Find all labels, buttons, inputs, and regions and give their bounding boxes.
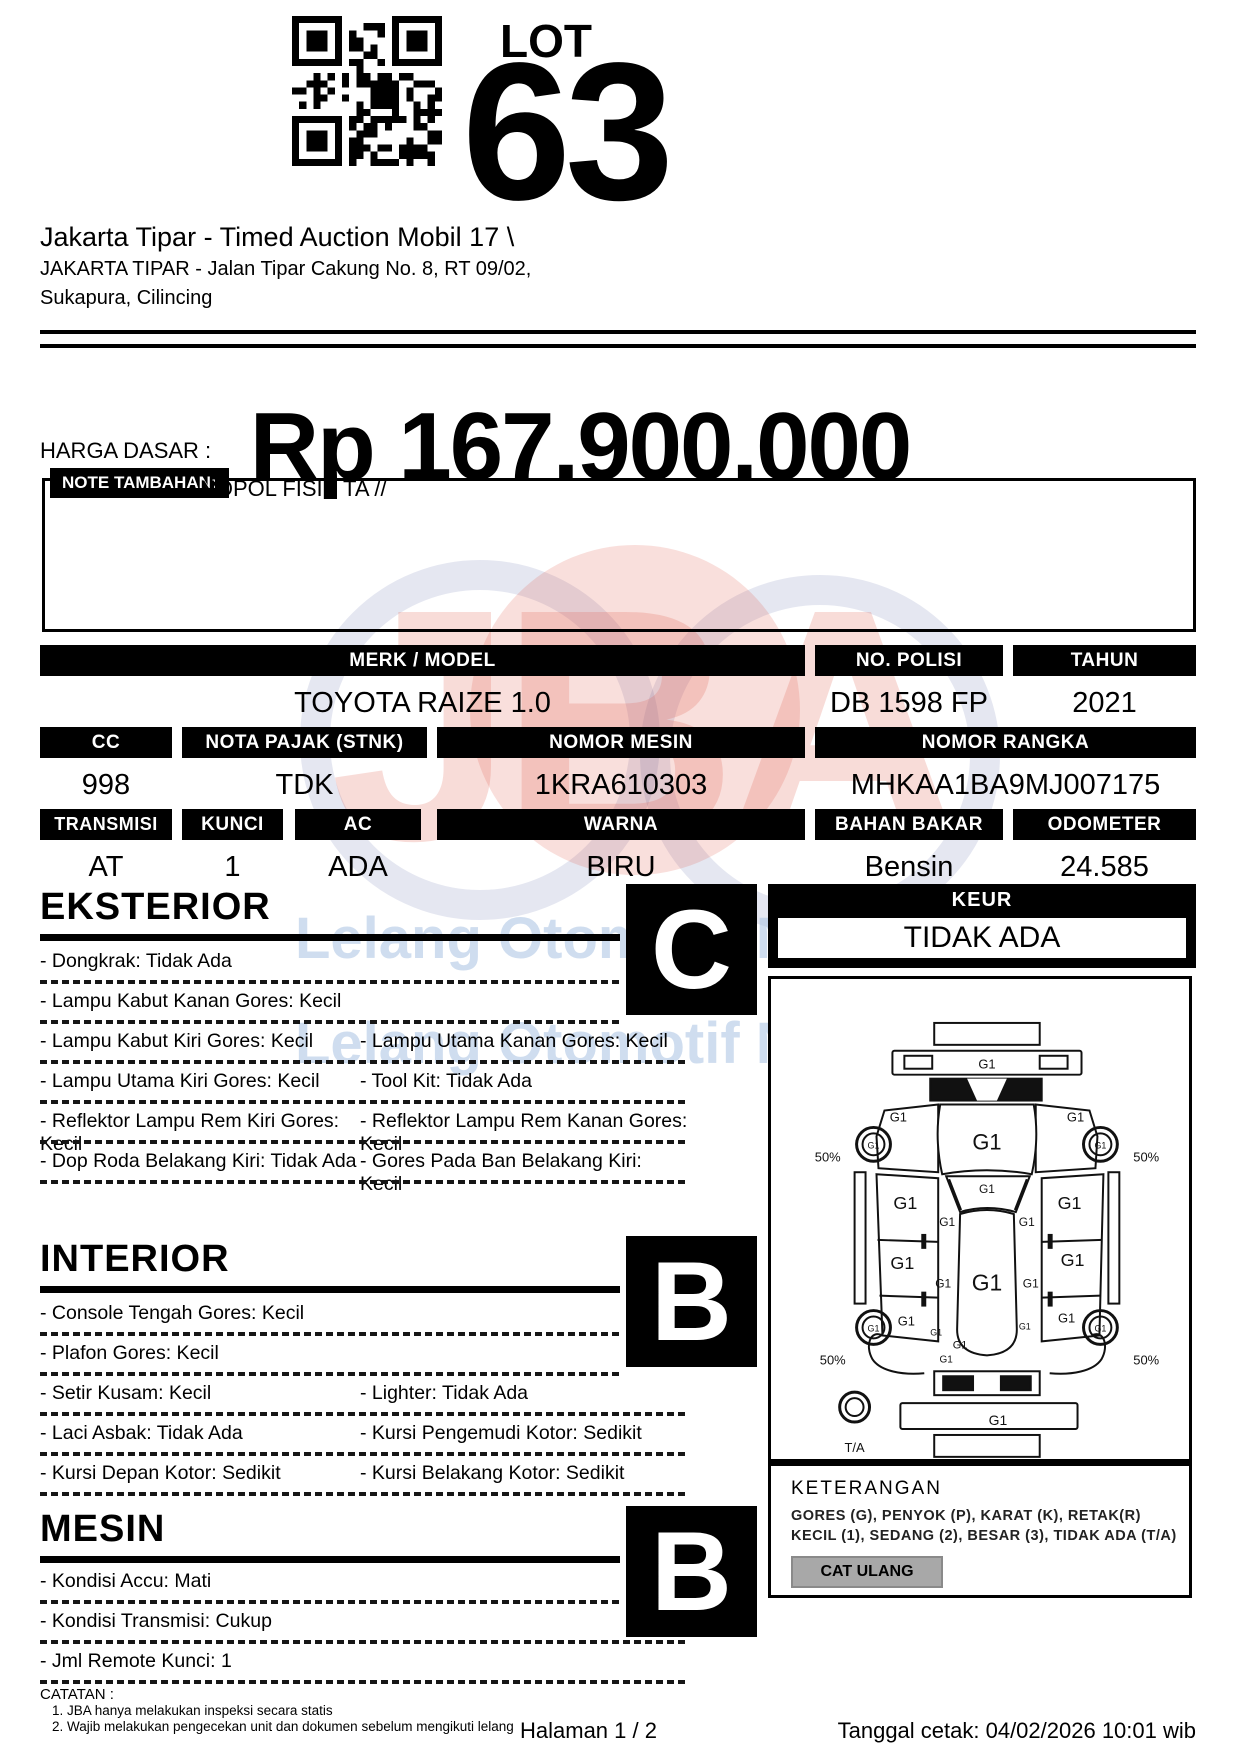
damage-mark: G1 xyxy=(1094,1323,1106,1333)
condition-item-row: - Dop Roda Belakang Kiri: Tidak Ada- Gor… xyxy=(40,1148,688,1188)
dotted-separator xyxy=(40,980,621,984)
damage-mark: G1 xyxy=(953,1339,968,1351)
condition-item-row: - Plafon Gores: Kecil xyxy=(40,1340,621,1380)
damage-mark: G1 xyxy=(930,1327,942,1337)
condition-item: - Kursi Belakang Kotor: Sedikit xyxy=(360,1462,688,1485)
condition-item: - Gores Pada Ban Belakang Kiri: Kecil xyxy=(360,1150,688,1196)
fender-rear-left xyxy=(869,1334,924,1374)
dotted-separator xyxy=(40,1452,688,1456)
spare-tire xyxy=(840,1392,870,1422)
condition-item: - Kursi Depan Kotor: Sedikit xyxy=(40,1462,360,1485)
section-title-mesin: MESIN xyxy=(40,1508,165,1551)
dotted-separator xyxy=(40,1180,688,1184)
pillar-tick xyxy=(921,1234,926,1249)
condition-item: - Dop Roda Belakang Kiri: Tidak Ada xyxy=(40,1150,360,1196)
condition-item-row: - Kondisi Accu: Mati xyxy=(40,1568,621,1608)
damage-mark: 50% xyxy=(815,1149,841,1164)
bahan-bakar-header: BAHAN BAKAR xyxy=(815,809,1003,840)
condition-item: - Lampu Kabut Kanan Gores: Kecil xyxy=(40,990,360,1013)
odometer-header: ODOMETER xyxy=(1013,809,1196,840)
transmisi-value: AT xyxy=(40,850,172,884)
nota-pajak-header: NOTA PAJAK (STNK) xyxy=(182,727,427,758)
keterangan-legend-damage: GORES (G), PENYOK (P), KARAT (K), RETAK(… xyxy=(771,1506,1189,1526)
condition-item xyxy=(360,1650,688,1673)
pillar-tick xyxy=(921,1292,926,1307)
header-divider xyxy=(40,330,1196,348)
condition-item xyxy=(360,1302,621,1325)
condition-item: - Kondisi Transmisi: Cukup xyxy=(40,1610,360,1633)
condition-item-row: - Kondisi Transmisi: Cukup xyxy=(40,1608,688,1648)
keur-value: TIDAK ADA xyxy=(776,916,1188,960)
auction-lot-sheet: JBA Lelang Otomotif No.1 Lelang Otomotif… xyxy=(0,0,1240,1754)
damage-mark: G1 xyxy=(1058,1193,1082,1213)
nomor-mesin-value: 1KRA610303 xyxy=(437,768,805,802)
kunci-header: KUNCI xyxy=(182,809,283,840)
condition-item xyxy=(360,1342,621,1365)
condition-item: - Lampu Utama Kanan Gores: Kecil xyxy=(360,1030,688,1053)
dotted-separator xyxy=(40,1372,621,1376)
dotted-separator xyxy=(40,1600,621,1604)
damage-mark: G1 xyxy=(935,1277,951,1291)
condition-item-row: - Console Tengah Gores: Kecil xyxy=(40,1300,621,1340)
damage-mark: 50% xyxy=(1133,1149,1159,1164)
mesin-grade-badge: B xyxy=(626,1506,757,1637)
tail-light-right xyxy=(1001,1376,1031,1390)
fender-front-left xyxy=(876,1105,938,1173)
bahan-bakar-value: Bensin xyxy=(815,850,1003,884)
page-indicator: Halaman 1 / 2 xyxy=(520,1718,657,1744)
damage-mark: G1 xyxy=(1023,1277,1039,1291)
eksterior-grade-badge: C xyxy=(626,884,757,1015)
car-damage-diagram: G1G1G1G1G1G150%50%G1G1G1G1G1G1G1G1G1G1G1… xyxy=(771,979,1189,1459)
dotted-separator xyxy=(40,1412,688,1416)
damage-mark: G1 xyxy=(890,1109,907,1124)
condition-item: - Console Tengah Gores: Kecil xyxy=(40,1302,360,1325)
dotted-separator xyxy=(40,1020,621,1024)
damage-mark: G1 xyxy=(940,1354,954,1365)
damage-mark: G1 xyxy=(1067,1109,1084,1124)
condition-item-row: - Reflektor Lampu Rem Kiri Gores: Kecil-… xyxy=(40,1108,688,1148)
qr-code xyxy=(292,16,442,166)
ac-value: ADA xyxy=(295,850,421,884)
sill-left xyxy=(855,1172,866,1303)
mesin-items: - Kondisi Accu: Mati- Kondisi Transmisi:… xyxy=(40,1568,688,1688)
keur-block: KEUR TIDAK ADA xyxy=(768,884,1196,968)
damage-mark: G1 xyxy=(898,1313,915,1328)
dotted-separator xyxy=(40,1332,621,1336)
lot-number: 63 xyxy=(462,42,668,222)
eksterior-items: - Dongkrak: Tidak Ada- Lampu Kabut Kanan… xyxy=(40,948,688,1188)
dotted-separator xyxy=(40,1100,688,1104)
eksterior-rule xyxy=(40,934,620,941)
tahun-header: TAHUN xyxy=(1013,645,1196,676)
dotted-separator xyxy=(40,1640,688,1644)
condition-item-row: - Lampu Kabut Kiri Gores: Kecil- Lampu U… xyxy=(40,1028,688,1068)
keterangan-box: KETERANGAN GORES (G), PENYOK (P), KARAT … xyxy=(768,1462,1192,1598)
dotted-separator xyxy=(40,1140,688,1144)
dotted-separator xyxy=(40,1680,688,1684)
no-polisi-header: NO. POLISI xyxy=(815,645,1003,676)
interior-grade-badge: B xyxy=(626,1236,757,1367)
condition-item: - Lampu Utama Kiri Gores: Kecil xyxy=(40,1070,360,1093)
auction-location-line2: Sukapura, Cilincing xyxy=(40,287,212,310)
tahun-value: 2021 xyxy=(1013,686,1196,720)
auction-title: Jakarta Tipar - Timed Auction Mobil 17 \ xyxy=(40,222,514,253)
damage-mark: 50% xyxy=(1133,1352,1159,1367)
condition-item: - Lampu Kabut Kiri Gores: Kecil xyxy=(40,1030,360,1053)
damage-mark: G1 xyxy=(1058,1311,1075,1326)
damage-mark: G1 xyxy=(1094,1140,1106,1150)
condition-item: - Plafon Gores: Kecil xyxy=(40,1342,360,1365)
condition-item: - Kondisi Accu: Mati xyxy=(40,1570,360,1593)
condition-item-row: - Lampu Kabut Kanan Gores: Kecil xyxy=(40,988,621,1028)
condition-item-row: - Jml Remote Kunci: 1 xyxy=(40,1648,688,1688)
interior-rule xyxy=(40,1286,620,1293)
nomor-rangka-header: NOMOR RANGKA xyxy=(815,727,1196,758)
dotted-separator xyxy=(40,1060,688,1064)
condition-item-row: - Dongkrak: Tidak Ada xyxy=(40,948,621,988)
cc-value: 998 xyxy=(40,768,172,802)
damage-mark: T/A xyxy=(845,1440,865,1455)
damage-mark: G1 xyxy=(978,1057,995,1072)
front-bumper-top xyxy=(934,1023,1039,1045)
merk-model-value: TOYOTA RAIZE 1.0 xyxy=(40,686,805,720)
damage-mark: G1 xyxy=(979,1182,995,1196)
damage-mark: G1 xyxy=(893,1193,917,1213)
damage-mark: 50% xyxy=(820,1352,846,1367)
cat-ulang-badge: CAT ULANG xyxy=(791,1556,943,1588)
auction-location-line1: JAKARTA TIPAR - Jalan Tipar Cakung No. 8… xyxy=(40,258,531,281)
section-title-eksterior: EKSTERIOR xyxy=(40,886,271,929)
catatan-item: 1. JBA hanya melakukan inspeksi secara s… xyxy=(40,1703,660,1719)
headlight-left xyxy=(904,1056,932,1069)
condition-item xyxy=(360,990,621,1013)
damage-mark: G1 xyxy=(1019,1321,1031,1331)
warna-value: BIRU xyxy=(437,850,805,884)
condition-item: - Dongkrak: Tidak Ada xyxy=(40,950,360,973)
damage-mark: G1 xyxy=(890,1253,914,1273)
keterangan-title: KETERANGAN xyxy=(771,1466,1189,1506)
nomor-mesin-header: NOMOR MESIN xyxy=(437,727,805,758)
dotted-separator xyxy=(40,1492,688,1496)
warna-header: WARNA xyxy=(437,809,805,840)
condition-item: - Setir Kusam: Kecil xyxy=(40,1382,360,1405)
interior-items: - Console Tengah Gores: Kecil- Plafon Go… xyxy=(40,1300,688,1500)
nota-pajak-value: TDK xyxy=(182,768,427,802)
condition-item-row: - Laci Asbak: Tidak Ada- Kursi Pengemudi… xyxy=(40,1420,688,1460)
condition-item: - Lighter: Tidak Ada xyxy=(360,1382,688,1405)
nomor-rangka-value: MHKAA1BA9MJ007175 xyxy=(815,768,1196,802)
damage-mark: G1 xyxy=(989,1412,1008,1428)
damage-diagram-box: G1G1G1G1G1G150%50%G1G1G1G1G1G1G1G1G1G1G1… xyxy=(768,976,1192,1462)
keur-label: KEUR xyxy=(770,886,1194,916)
condition-item xyxy=(360,1570,621,1593)
sill-right xyxy=(1108,1172,1119,1303)
damage-mark: G1 xyxy=(939,1215,955,1229)
pillar-tick xyxy=(1048,1292,1053,1307)
condition-item: - Kursi Pengemudi Kotor: Sedikit xyxy=(360,1422,688,1445)
rear-bumper-lower xyxy=(934,1435,1039,1457)
damage-mark: G1 xyxy=(868,1323,880,1333)
tail-light-left xyxy=(943,1376,973,1390)
damage-mark: G1 xyxy=(1019,1215,1035,1229)
keterangan-legend-severity: KECIL (1), SEDANG (2), BESAR (3), TIDAK … xyxy=(771,1526,1189,1546)
note-text: NOPOL FISIK TA // xyxy=(200,476,387,502)
condition-item: - Tool Kit: Tidak Ada xyxy=(360,1070,688,1093)
catatan-title: CATATAN : xyxy=(40,1686,660,1703)
damage-mark: G1 xyxy=(1061,1250,1085,1270)
condition-item-row: - Lampu Utama Kiri Gores: Kecil- Tool Ki… xyxy=(40,1068,688,1108)
merk-model-header: MERK / MODEL xyxy=(40,645,805,676)
cc-header: CC xyxy=(40,727,172,758)
ac-header: AC xyxy=(295,809,421,840)
mesin-rule xyxy=(40,1556,620,1563)
headlight-right xyxy=(1040,1056,1068,1069)
condition-item: - Jml Remote Kunci: 1 xyxy=(40,1650,360,1673)
kunci-value: 1 xyxy=(182,850,283,884)
damage-mark: G1 xyxy=(972,1129,1001,1154)
section-title-interior: INTERIOR xyxy=(40,1238,230,1281)
odometer-value: 24.585 xyxy=(1013,850,1196,884)
no-polisi-value: DB 1598 FP xyxy=(815,686,1003,720)
condition-item-row: - Setir Kusam: Kecil- Lighter: Tidak Ada xyxy=(40,1380,688,1420)
transmisi-header: TRANSMISI xyxy=(40,809,172,840)
condition-item: - Laci Asbak: Tidak Ada xyxy=(40,1422,360,1445)
damage-mark: G1 xyxy=(868,1140,880,1150)
damage-mark: G1 xyxy=(972,1270,1003,1296)
condition-item xyxy=(360,950,621,973)
condition-item-row: - Kursi Depan Kotor: Sedikit- Kursi Bela… xyxy=(40,1460,688,1500)
pillar-tick xyxy=(1048,1234,1053,1249)
print-timestamp: Tanggal cetak: 04/02/2026 10:01 wib xyxy=(838,1718,1196,1744)
